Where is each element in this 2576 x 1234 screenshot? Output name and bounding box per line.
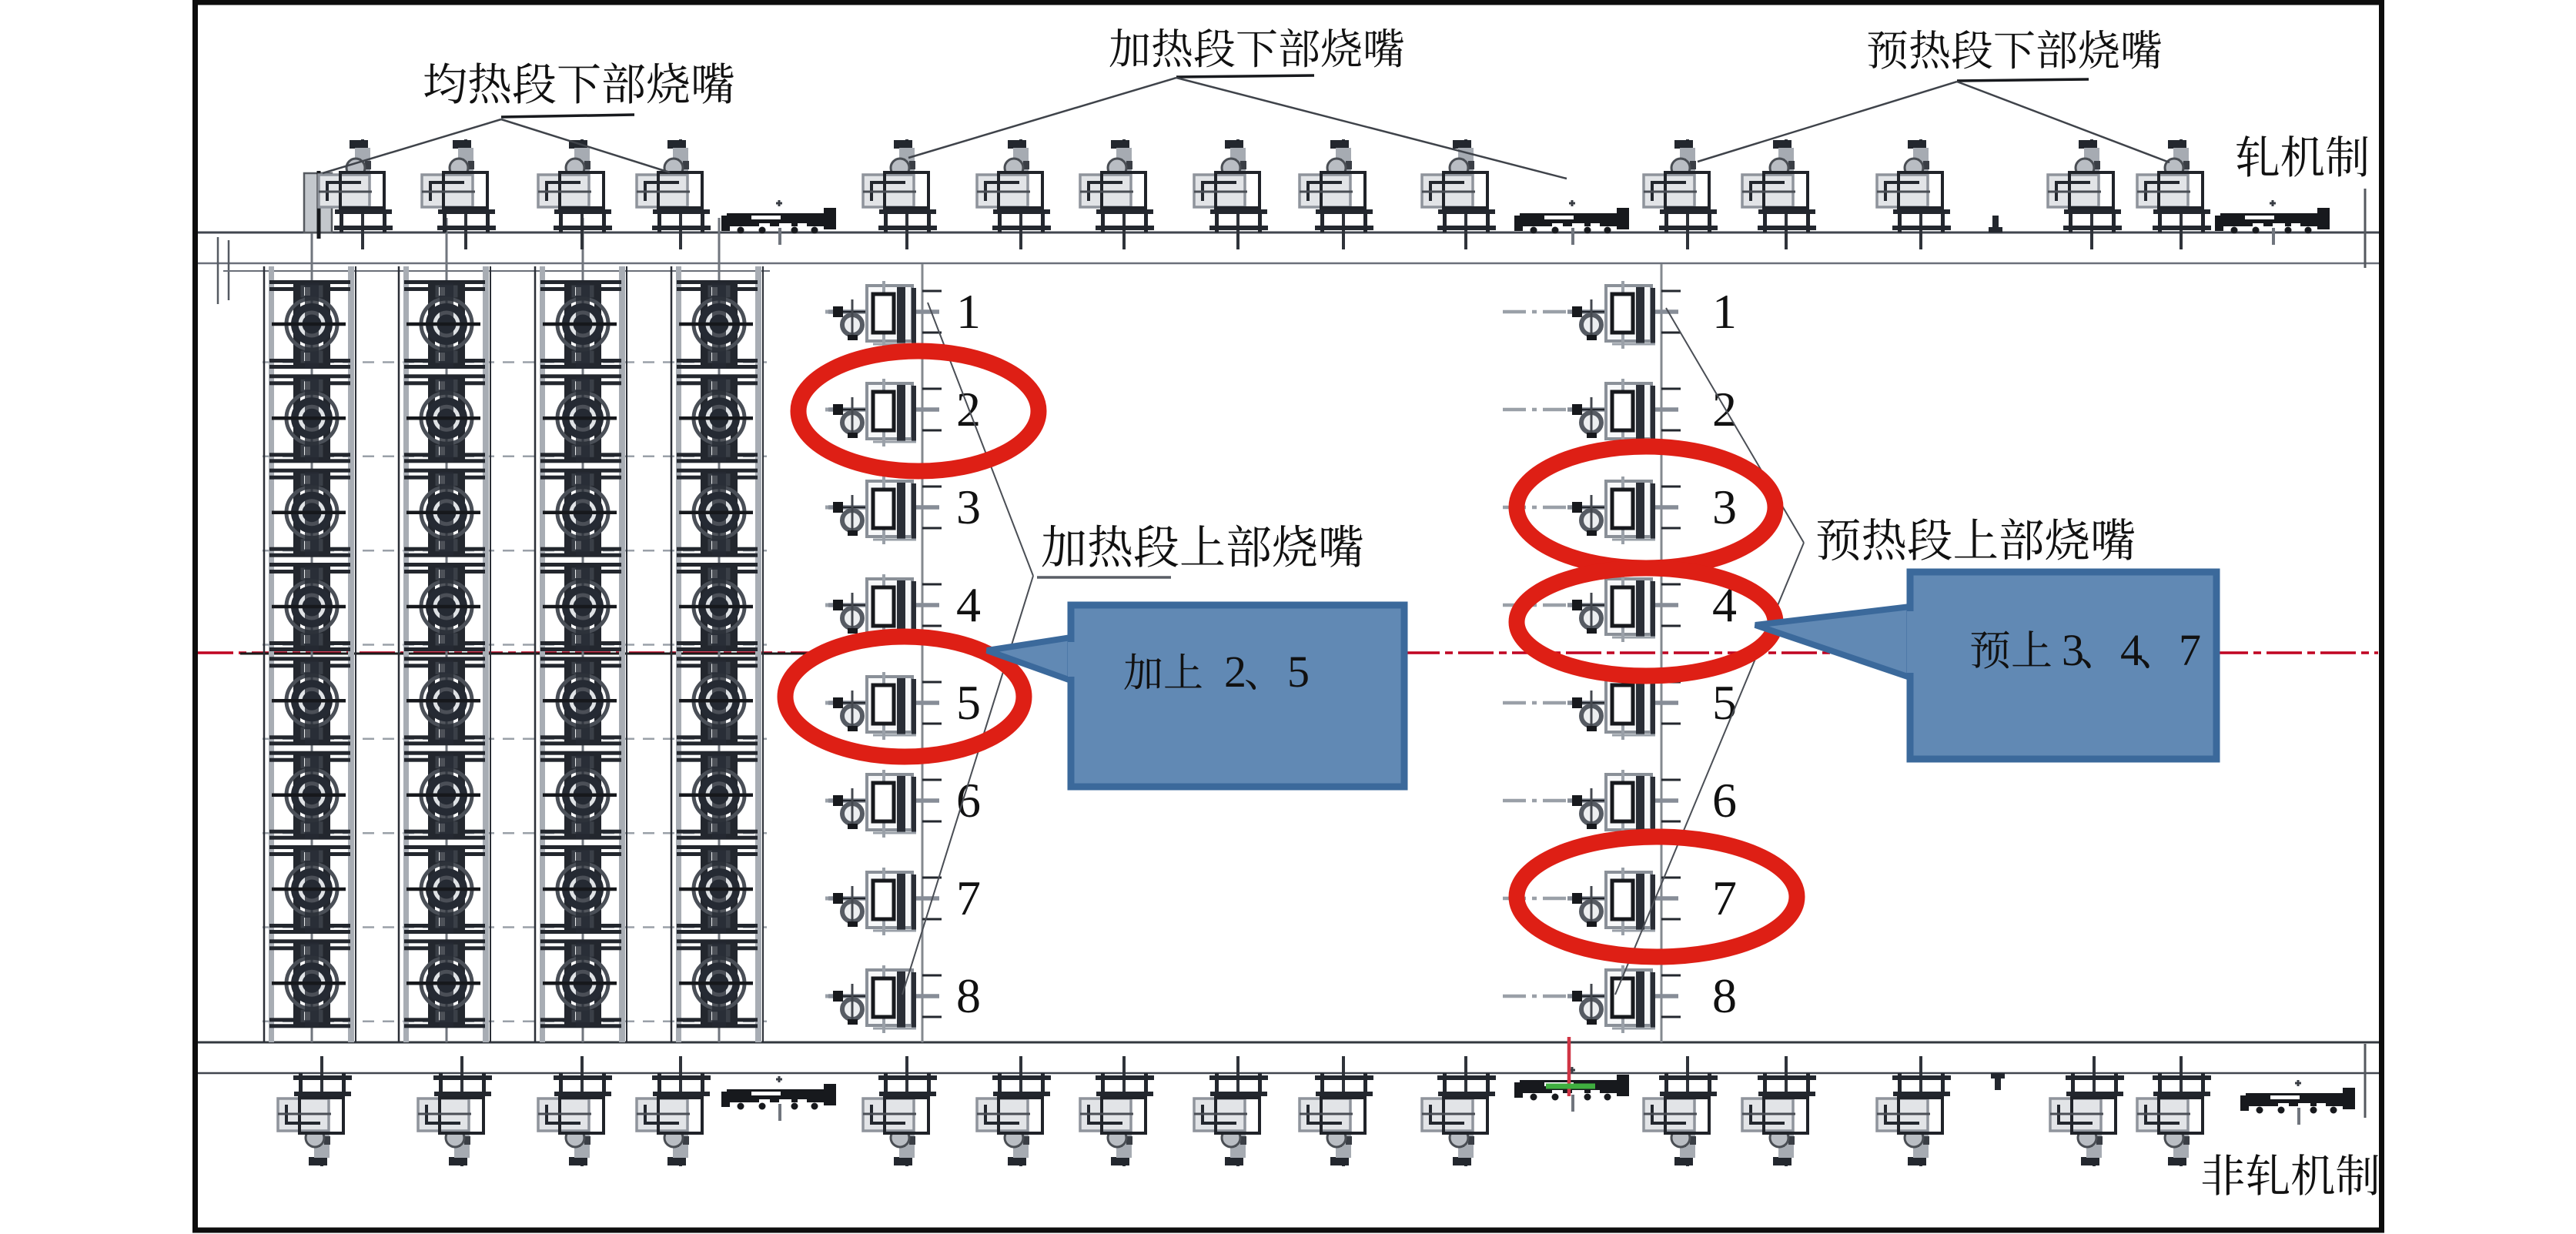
svg-text:5: 5 <box>956 675 981 730</box>
svg-text:2: 2 <box>1712 382 1737 436</box>
svg-text:3: 3 <box>956 480 981 534</box>
svg-text:3: 3 <box>2062 625 2084 675</box>
svg-text:7: 7 <box>2179 625 2201 675</box>
svg-text:7: 7 <box>956 871 981 925</box>
svg-text:2: 2 <box>1224 647 1246 697</box>
svg-text:8: 8 <box>956 968 981 1023</box>
svg-text:1: 1 <box>1712 284 1737 339</box>
svg-text:7: 7 <box>1712 871 1737 925</box>
svg-text:5: 5 <box>1287 647 1310 697</box>
svg-text:4: 4 <box>2120 625 2143 675</box>
svg-text:4: 4 <box>956 577 981 632</box>
svg-text:1: 1 <box>956 284 981 339</box>
svg-text:5: 5 <box>1712 675 1737 730</box>
svg-text:6: 6 <box>1712 773 1737 828</box>
svg-text:3: 3 <box>1712 480 1737 534</box>
svg-text:8: 8 <box>1712 968 1737 1023</box>
